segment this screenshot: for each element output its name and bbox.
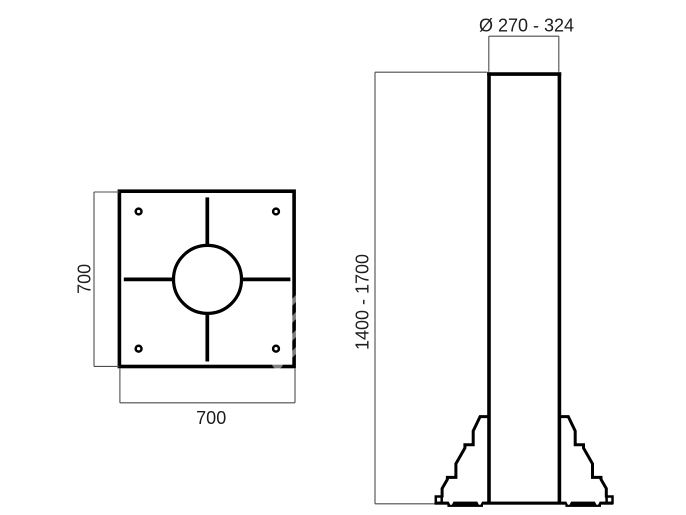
- svg-text:700: 700: [74, 264, 94, 294]
- svg-text:700: 700: [196, 408, 226, 428]
- svg-text:1400 - 1700: 1400 - 1700: [352, 254, 372, 350]
- svg-text:Ø 270 - 324: Ø 270 - 324: [479, 16, 574, 36]
